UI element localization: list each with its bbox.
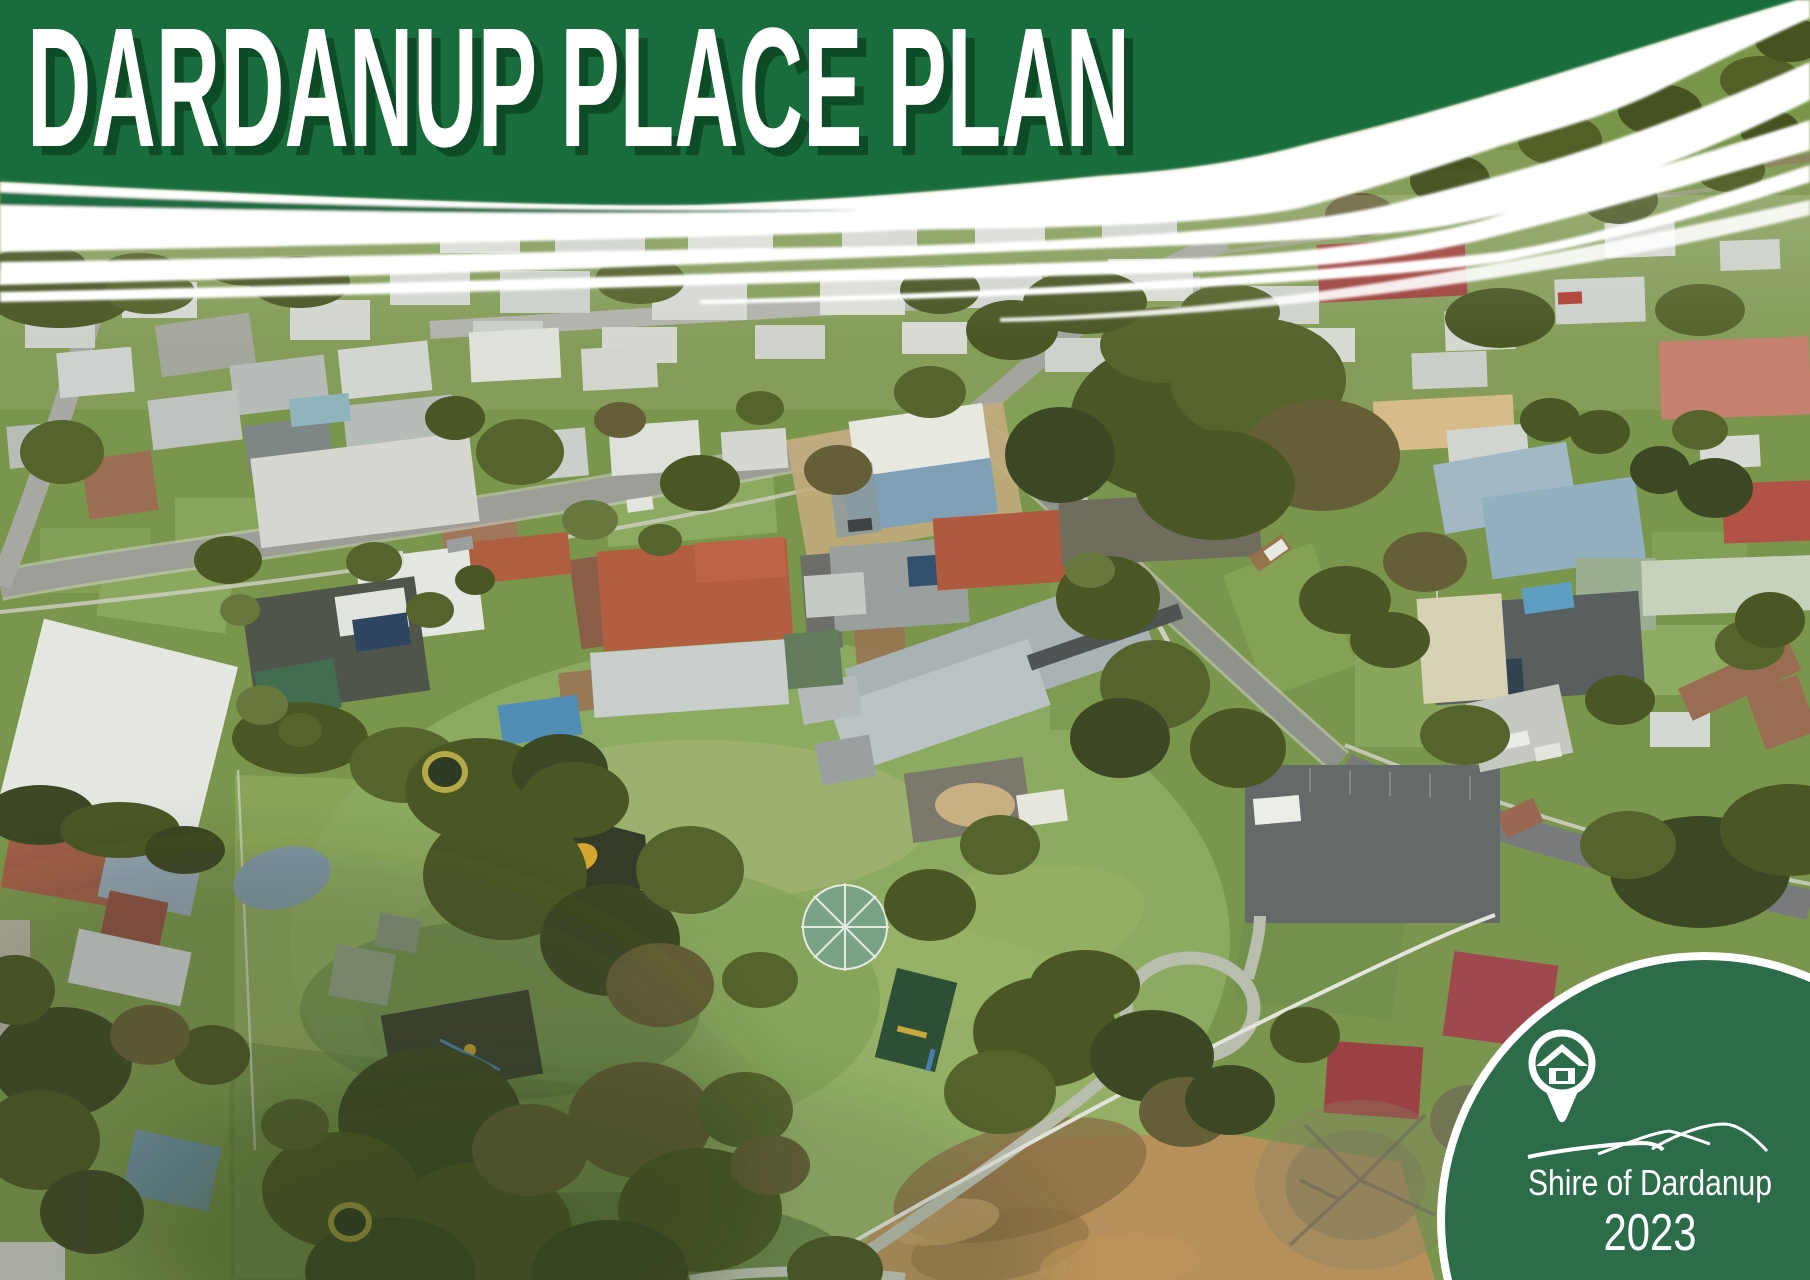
svg-text:DARDANUP PLACE PLAN: DARDANUP PLACE PLAN <box>27 0 1130 183</box>
svg-text:2023: 2023 <box>1604 1204 1697 1262</box>
svg-text:Shire of Dardanup: Shire of Dardanup <box>1528 1162 1772 1203</box>
